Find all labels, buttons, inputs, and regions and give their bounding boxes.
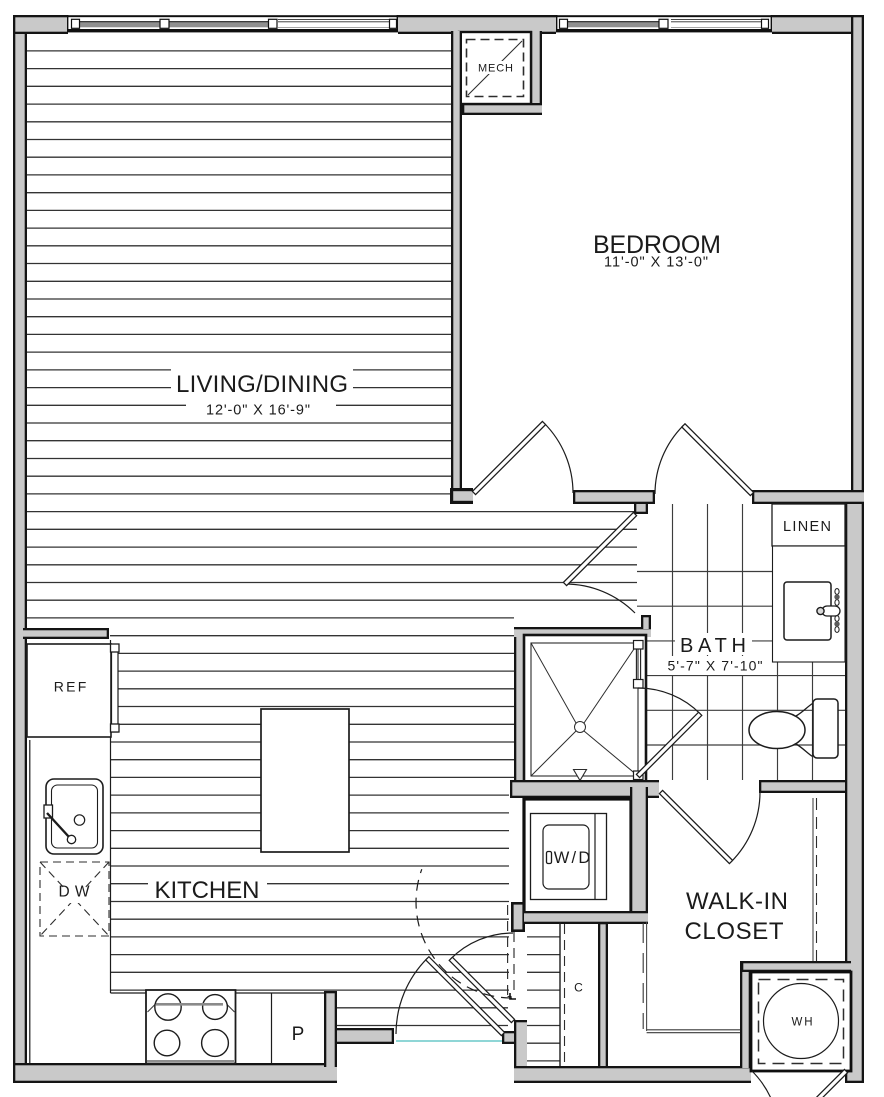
- svg-text:DW: DW: [59, 884, 90, 901]
- svg-text:MECH: MECH: [478, 63, 513, 75]
- svg-text:W/D: W/D: [554, 849, 591, 867]
- svg-text:LIVING/DINING: LIVING/DINING: [176, 371, 348, 398]
- svg-text:CLOSET: CLOSET: [685, 918, 784, 945]
- svg-text:KITCHEN: KITCHEN: [155, 877, 260, 904]
- svg-text:REF: REF: [54, 679, 87, 695]
- svg-text:C: C: [574, 981, 583, 995]
- svg-text:11'-0" X 13'-0": 11'-0" X 13'-0": [604, 255, 708, 271]
- svg-text:12'-0" X 16'-9": 12'-0" X 16'-9": [206, 403, 310, 419]
- svg-text:5'-7" X 7'-10": 5'-7" X 7'-10": [668, 658, 763, 674]
- svg-text:LINEN: LINEN: [783, 519, 831, 535]
- svg-text:WH: WH: [792, 1017, 813, 1029]
- svg-text:P: P: [292, 1024, 305, 1045]
- svg-text:WALK-IN: WALK-IN: [686, 888, 788, 915]
